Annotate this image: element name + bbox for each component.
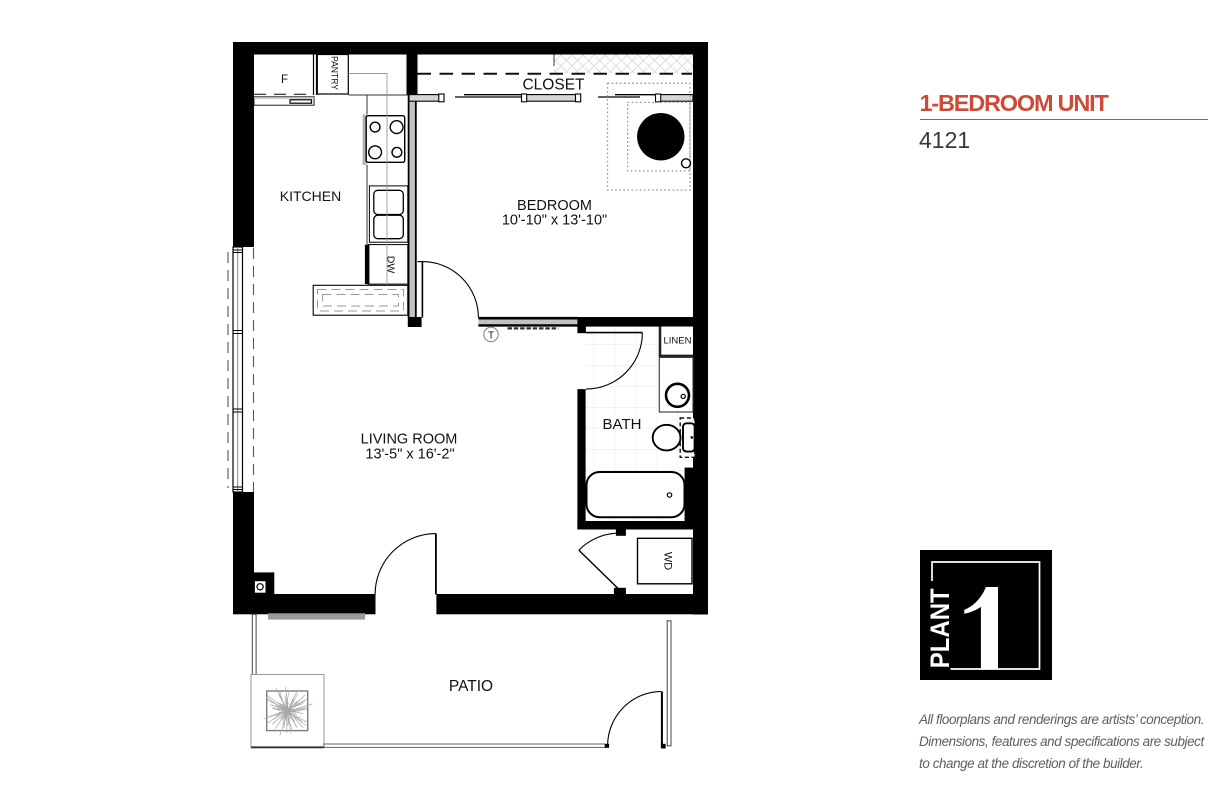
svg-text:KITCHEN: KITCHEN xyxy=(280,188,341,204)
svg-text:10'-10" x 13'-10": 10'-10" x 13'-10" xyxy=(502,213,607,229)
svg-text:WD: WD xyxy=(662,552,674,570)
svg-text:CLOSET: CLOSET xyxy=(522,76,585,93)
svg-text:PATIO: PATIO xyxy=(449,678,493,695)
svg-text:T: T xyxy=(488,330,494,341)
svg-text:LIVING ROOM: LIVING ROOM xyxy=(361,431,458,447)
svg-text:BEDROOM: BEDROOM xyxy=(517,198,592,214)
svg-text:DW: DW xyxy=(385,256,397,274)
svg-text:PLANT: PLANT xyxy=(925,588,955,668)
svg-text:LINEN: LINEN xyxy=(664,335,692,346)
svg-text:13'-5" x 16'-2": 13'-5" x 16'-2" xyxy=(365,447,454,463)
svg-text:BATH: BATH xyxy=(603,416,642,433)
svg-text:F: F xyxy=(281,74,288,86)
svg-text:PANTRY: PANTRY xyxy=(330,56,340,90)
